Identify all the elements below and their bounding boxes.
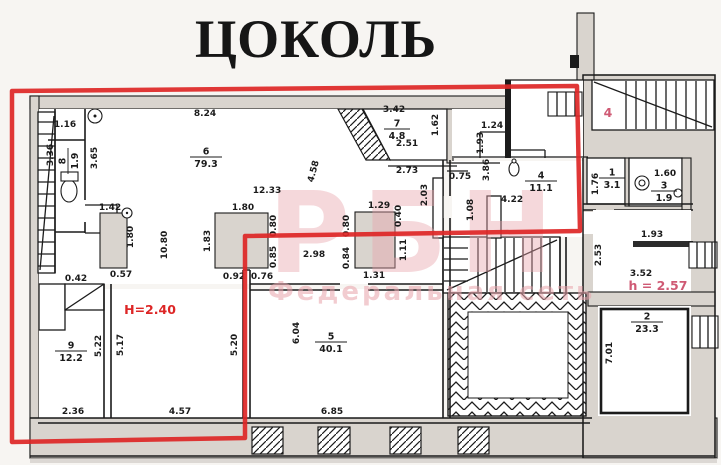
radiator	[692, 316, 718, 348]
column	[100, 213, 127, 268]
dimension-label: 5.20	[230, 334, 240, 356]
dimension-label: 1.80	[232, 203, 254, 213]
room-number: 3	[661, 181, 668, 192]
dimension-label: 0.42	[65, 274, 87, 284]
dimension-label: 0.40	[394, 205, 404, 227]
dimension-label: 0.84	[342, 247, 352, 269]
toilet-icon	[61, 180, 77, 202]
column	[215, 213, 268, 268]
toilet-tank	[61, 172, 78, 181]
dimension-label: 2.36	[62, 407, 84, 417]
scanned-floor-plan-page: ЦОКОЛЬ	[0, 0, 721, 465]
dimension-label: 3.86	[482, 159, 492, 181]
dimension-label: 1.24	[481, 121, 503, 131]
dimension-label: 12.33	[253, 186, 281, 196]
room-number: 9	[68, 341, 75, 352]
dimension-label: 10.80	[160, 231, 170, 259]
dimension-label: 0.85	[269, 246, 279, 268]
dimension-label: 7.01	[605, 342, 615, 364]
room-area: 4.8	[389, 131, 406, 142]
dimension-label: 4.57	[169, 407, 191, 417]
dimension-label: 3.65	[90, 147, 100, 169]
dimension-label: 0.57	[110, 270, 132, 280]
dimension-label: 6.85	[321, 407, 343, 417]
room-area: 1.9	[70, 153, 81, 170]
room-number: 2	[644, 312, 651, 323]
closet	[39, 284, 65, 330]
dimension-label: 2.03	[420, 184, 430, 206]
dimension-label: 3.36	[46, 144, 56, 166]
dimension-label: 1.76	[591, 173, 601, 195]
dimension-label: 2.53	[594, 244, 604, 266]
dimension-label: 2.73	[396, 166, 418, 176]
basin-icon	[674, 189, 682, 197]
dimension-label: 1.93	[476, 132, 486, 154]
room-number: 8	[58, 157, 69, 164]
page-title: ЦОКОЛЬ	[195, 9, 437, 69]
room-area: 11.1	[529, 183, 552, 194]
wall-tick	[570, 55, 579, 68]
room-area: 79.3	[194, 159, 217, 170]
radiator	[689, 242, 717, 268]
dimension-label: 1.29	[368, 201, 390, 211]
room-number: 6	[203, 147, 210, 158]
dimension-label: 4.22	[501, 195, 523, 205]
dimension-label: 1.08	[466, 199, 476, 221]
dimension-label: 3.42	[383, 105, 405, 115]
dimension-label: 0.75	[449, 172, 471, 182]
height-annotation: 4	[604, 105, 613, 120]
partition-stub	[633, 241, 693, 247]
dimension-label: 8.24	[194, 109, 216, 119]
height-annotation: H=2.40	[124, 302, 176, 317]
room-number: 5	[328, 332, 335, 343]
room-number: 4	[538, 171, 545, 182]
room-area: 12.2	[59, 353, 82, 364]
height-annotation: h = 2.57	[629, 278, 688, 293]
room-number: 1	[609, 168, 616, 179]
dimension-label: 1.60	[654, 169, 676, 179]
dimension-label: 1.80	[126, 226, 136, 248]
dimension-label: 5.22	[94, 335, 104, 357]
dimension-label: 1.11	[399, 239, 409, 261]
dimension-label: 1.31	[363, 271, 385, 281]
dimension-label: 1.62	[431, 114, 441, 136]
room-area: 1.9	[656, 193, 673, 204]
room-area: 40.1	[319, 344, 342, 355]
room-area: 3.1	[604, 180, 621, 191]
dimension-label: 1.83	[203, 230, 213, 252]
watermark-sub-text: Федеральная сеть	[268, 277, 596, 307]
dimension-label: 1.93	[641, 230, 663, 240]
dimension-label: 2.98	[303, 250, 325, 260]
room-number: 7	[394, 119, 401, 130]
dimension-label: 5.17	[116, 334, 126, 356]
dimension-label: 1.42	[99, 203, 121, 213]
dimension-label: 0.92	[223, 272, 245, 282]
top-pillar	[577, 13, 594, 80]
dimension-label: 6.04	[292, 322, 302, 344]
room-area: 23.3	[635, 324, 658, 335]
vestibule-wall	[505, 80, 511, 158]
floor-plan-canvas: ЦОКОЛЬ	[0, 0, 721, 465]
chevron-room-inner	[468, 312, 568, 398]
dimension-label: 0.76	[251, 272, 273, 282]
dimension-label: 1.16	[54, 120, 76, 130]
door-opening	[583, 212, 595, 234]
